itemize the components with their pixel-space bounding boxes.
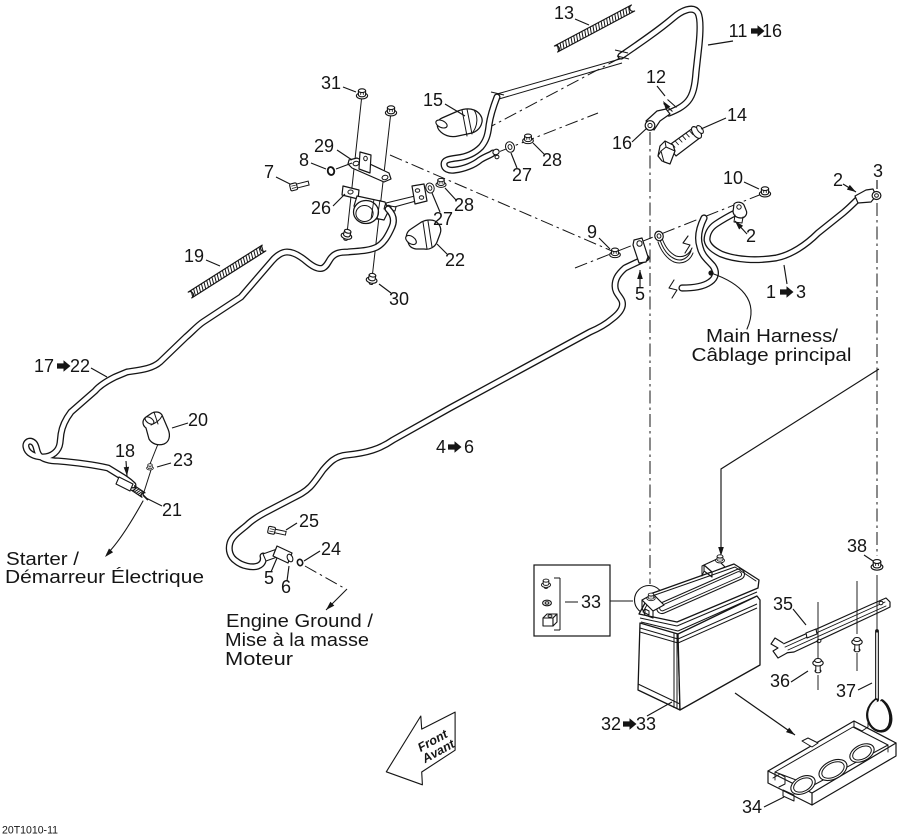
svg-text:5: 5: [264, 568, 274, 588]
svg-text:16: 16: [762, 21, 782, 41]
svg-text:Main Harness/: Main Harness/: [706, 326, 838, 346]
svg-text:4: 4: [436, 437, 446, 457]
svg-text:22: 22: [70, 356, 90, 376]
svg-text:1: 1: [766, 282, 776, 302]
svg-text:28: 28: [542, 150, 562, 170]
svg-text:22: 22: [445, 250, 465, 270]
svg-text:12: 12: [646, 67, 666, 87]
svg-text:27: 27: [512, 165, 532, 185]
svg-text:30: 30: [389, 289, 409, 309]
svg-text:17: 17: [34, 356, 54, 376]
svg-text:24: 24: [321, 539, 341, 559]
svg-text:37: 37: [836, 681, 856, 701]
svg-text:21: 21: [162, 500, 182, 520]
svg-text:31: 31: [321, 73, 341, 93]
svg-text:25: 25: [299, 511, 319, 531]
svg-text:2: 2: [746, 226, 756, 246]
svg-text:36: 36: [770, 671, 790, 691]
svg-text:3: 3: [796, 282, 806, 302]
svg-text:Moteur: Moteur: [225, 649, 293, 669]
svg-text:Engine Ground /: Engine Ground /: [226, 611, 373, 631]
svg-text:7: 7: [264, 162, 274, 182]
svg-text:23: 23: [173, 450, 193, 470]
svg-text:18: 18: [115, 441, 135, 461]
svg-text:14: 14: [727, 105, 747, 125]
svg-text:Démarreur Électrique: Démarreur Électrique: [5, 567, 204, 587]
svg-text:10: 10: [723, 168, 743, 188]
svg-text:6: 6: [464, 437, 474, 457]
svg-text:15: 15: [423, 90, 443, 110]
svg-text:13: 13: [554, 3, 574, 23]
svg-text:32: 32: [601, 714, 621, 734]
svg-text:27: 27: [433, 209, 453, 229]
svg-text:8: 8: [299, 150, 309, 170]
svg-text:34: 34: [742, 797, 762, 817]
svg-text:16: 16: [612, 133, 632, 153]
svg-text:28: 28: [454, 195, 474, 215]
svg-text:Câblage principal: Câblage principal: [692, 345, 852, 365]
svg-text:33: 33: [581, 592, 601, 612]
svg-text:29: 29: [314, 136, 334, 156]
svg-text:3: 3: [873, 161, 883, 181]
svg-text:6: 6: [281, 577, 291, 597]
svg-text:38: 38: [847, 536, 867, 556]
svg-text:33: 33: [636, 714, 656, 734]
svg-text:9: 9: [587, 222, 597, 242]
svg-text:20T1010-11: 20T1010-11: [2, 825, 58, 835]
svg-text:26: 26: [311, 198, 331, 218]
svg-text:11: 11: [729, 21, 748, 41]
svg-text:2: 2: [833, 170, 843, 190]
svg-text:35: 35: [773, 594, 793, 614]
svg-text:Mise à la masse: Mise à la masse: [225, 630, 369, 650]
svg-text:Starter /: Starter /: [6, 549, 79, 569]
svg-text:20: 20: [188, 410, 208, 430]
svg-text:19: 19: [184, 246, 204, 266]
